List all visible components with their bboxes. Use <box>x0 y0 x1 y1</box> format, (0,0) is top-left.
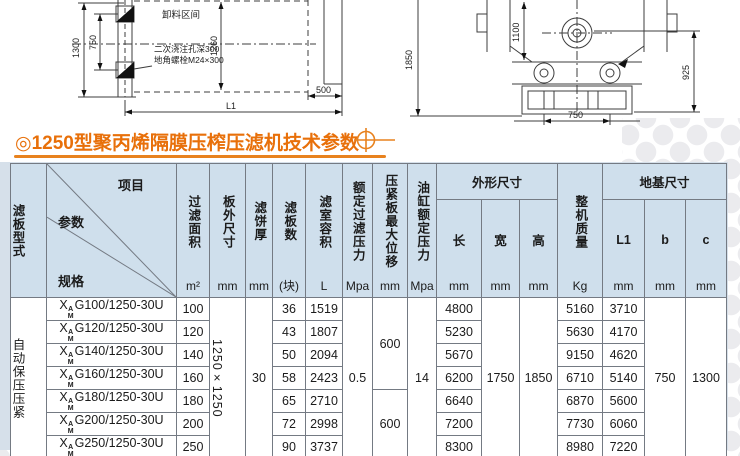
filter-pressure-cell: 0.5 <box>343 298 373 456</box>
plate-outer-unit: mm <box>218 279 238 297</box>
plates-cell: 50 <box>273 344 306 367</box>
model-sub: M <box>68 360 74 367</box>
col-header-filter-area: 过滤面积 m² <box>177 164 210 298</box>
height-unit: mm <box>529 279 549 297</box>
model-sup-sub: AM <box>68 353 74 366</box>
cake-thickness-label: 滤饼厚 <box>253 165 266 279</box>
area-cell: 180 <box>177 390 210 413</box>
length-cell: 4800 <box>437 298 482 321</box>
length-cell: 6640 <box>437 390 482 413</box>
model-cell: XAMG140/1250-30U <box>47 344 177 367</box>
machine-end-view-drawing: 1850 1100 925 750 <box>392 0 722 126</box>
model-cell: XAMG180/1250-30U <box>47 390 177 413</box>
weight-cell: 9150 <box>558 344 603 367</box>
col-header-c: c mm <box>686 200 727 298</box>
volume-cell: 1807 <box>306 321 343 344</box>
displacement-cell-a: 600 <box>373 298 408 390</box>
l1-cell: 3710 <box>603 298 645 321</box>
dim-750-label: 750 <box>568 110 583 120</box>
model-sub: M <box>68 314 74 321</box>
l1-cell: 4170 <box>603 321 645 344</box>
area-cell: 160 <box>177 367 210 390</box>
crosshair-icon <box>352 126 398 154</box>
plates-cell: 72 <box>273 413 306 436</box>
col-header-height: 高 mm <box>520 200 558 298</box>
l1-unit: mm <box>614 279 634 297</box>
col-header-plate-outer: 板外尺寸 mm <box>210 164 246 298</box>
weight-cell: 7730 <box>558 413 603 436</box>
spec-table: 滤板型式 项目 参数 规格 过滤面积 m² 板外尺寸 mm 滤饼厚 mm <box>10 163 727 456</box>
col-header-plate-count: 滤板数 (块) <box>273 164 306 298</box>
model-text: G250/1250-30U <box>75 436 164 450</box>
plates-cell: 58 <box>273 367 306 390</box>
length-cell: 8300 <box>437 436 482 456</box>
width-unit: mm <box>491 279 511 297</box>
model-text: G120/1250-30U <box>75 321 164 335</box>
col-header-cake-thickness: 滤饼厚 mm <box>246 164 273 298</box>
chamber-volume-unit: L <box>321 279 328 297</box>
filter-pressure-label: 额定过滤压力 <box>351 165 364 279</box>
c-unit: mm <box>696 279 716 297</box>
page: 1300 750 1260 卸料区间 二次浇注孔深300 地角螺栓M24×300… <box>0 0 740 456</box>
l1-cell: 5600 <box>603 390 645 413</box>
plates-cell: 90 <box>273 436 306 456</box>
model-x: X <box>59 367 67 381</box>
height-cell: 1850 <box>520 298 558 456</box>
model-x: X <box>59 344 67 358</box>
length-unit: mm <box>449 279 469 297</box>
filter-area-unit: m² <box>186 279 200 297</box>
volume-cell: 2998 <box>306 413 343 436</box>
model-cell: XAMG160/1250-30U <box>47 367 177 390</box>
length-label: 长 <box>453 201 466 279</box>
plate-outer-label: 板外尺寸 <box>221 165 234 279</box>
col-header-cylinder-pressure: 油缸额定压力 Mpa <box>408 164 437 298</box>
model-x: X <box>59 298 67 312</box>
model-sub: M <box>68 406 74 413</box>
title-underline <box>14 155 386 158</box>
weight-cell: 5160 <box>558 298 603 321</box>
cylinder-pressure-unit: Mpa <box>410 279 433 297</box>
model-cell: XAMG100/1250-30U <box>47 298 177 321</box>
weight-cell: 6870 <box>558 390 603 413</box>
col-header-plate-displacement: 压紧板最大位移 mm <box>373 164 408 298</box>
dim-l1-label: L1 <box>226 101 236 111</box>
model-sub: M <box>68 452 74 456</box>
model-text: G180/1250-30U <box>75 390 164 404</box>
model-text: G200/1250-30U <box>75 413 164 427</box>
dim-925-label: 925 <box>681 65 691 80</box>
model-sup-sub: AM <box>68 330 74 343</box>
l1-cell: 6060 <box>603 413 645 436</box>
plate-count-label: 滤板数 <box>283 165 296 279</box>
volume-cell: 2423 <box>306 367 343 390</box>
plate-displacement-label: 压紧板最大位移 <box>384 165 397 279</box>
foundation-label: 地基尺寸 <box>640 176 690 190</box>
filter-area-label: 过滤面积 <box>187 165 200 279</box>
col-header-length: 长 mm <box>437 200 482 298</box>
area-cell: 120 <box>177 321 210 344</box>
dim-1100-label: 1100 <box>511 23 521 42</box>
plate-displacement-unit: mm <box>380 279 400 297</box>
height-label: 高 <box>532 201 545 279</box>
length-cell: 5670 <box>437 344 482 367</box>
col-header-width: 宽 mm <box>482 200 520 298</box>
length-cell: 5230 <box>437 321 482 344</box>
c-label: c <box>703 201 710 279</box>
plate-outer-value: 1250×1250 <box>210 339 224 418</box>
length-cell: 7200 <box>437 413 482 436</box>
col-header-filter-pressure: 额定过滤压力 Mpa <box>343 164 373 298</box>
l1-cell: 4620 <box>603 344 645 367</box>
model-x: X <box>59 413 67 427</box>
page-title: ◎1250型聚丙烯隔膜压榨压滤机技术参数 <box>15 128 359 155</box>
col-header-plate-type: 滤板型式 <box>11 164 47 298</box>
dim-750-label: 750 <box>88 35 98 50</box>
c-cell: 1300 <box>686 298 727 456</box>
area-cell: 140 <box>177 344 210 367</box>
width-label: 宽 <box>494 201 507 279</box>
filter-pressure-unit: Mpa <box>346 279 369 297</box>
weight-cell: 6710 <box>558 367 603 390</box>
plates-cell: 43 <box>273 321 306 344</box>
weight-cell: 8980 <box>558 436 603 456</box>
model-sub: M <box>68 383 74 390</box>
l1-cell: 7220 <box>603 436 645 456</box>
plates-cell: 65 <box>273 390 306 413</box>
note-line2: 地角螺栓M24×300 <box>154 55 224 65</box>
cylinder-pressure-label: 油缸额定压力 <box>416 165 429 279</box>
volume-cell: 2710 <box>306 390 343 413</box>
l1-cell: 5140 <box>603 367 645 390</box>
model-sub: M <box>68 337 74 344</box>
length-cell: 6200 <box>437 367 482 390</box>
col-header-l1: L1 mm <box>603 200 645 298</box>
row-group-label: 自动保压压紧 <box>11 338 24 419</box>
machine-weight-unit: Kg <box>573 279 588 297</box>
b-cell: 750 <box>645 298 686 456</box>
model-sup-sub: AM <box>68 399 74 412</box>
volume-cell: 2094 <box>306 344 343 367</box>
model-x: X <box>59 436 67 450</box>
foundation-plan-drawing: 1300 750 1260 卸料区间 二次浇注孔深300 地角螺栓M24×300… <box>66 0 366 126</box>
model-sup-sub: AM <box>68 445 74 456</box>
model-sup-sub: AM <box>68 376 74 389</box>
spec-row: 自动保压压紧 XAMG100/1250-30U 100 1250×1250 30… <box>11 298 727 321</box>
col-header-machine-weight: 整机质量 Kg <box>558 164 603 298</box>
l1-label: L1 <box>616 201 631 279</box>
dim-1850-label: 1850 <box>404 50 414 70</box>
dim-500-label: 500 <box>316 85 331 95</box>
model-cell: XAMG250/1250-30U <box>47 436 177 456</box>
volume-cell: 1519 <box>306 298 343 321</box>
corner-spec-label: 规格 <box>58 271 84 290</box>
displacement-cell-b: 600 <box>373 390 408 456</box>
chamber-volume-label: 滤室容积 <box>318 165 331 279</box>
model-x: X <box>59 321 67 335</box>
cylinder-pressure-cell: 14 <box>408 298 437 456</box>
machine-weight-label: 整机质量 <box>574 165 587 279</box>
width-cell: 1750 <box>482 298 520 456</box>
b-unit: mm <box>655 279 675 297</box>
cake-thickness-unit: mm <box>249 279 269 297</box>
b-label: b <box>661 201 669 279</box>
area-cell: 100 <box>177 298 210 321</box>
model-sup-sub: AM <box>68 422 74 435</box>
model-sup-sub: AM <box>68 307 74 320</box>
model-text: G160/1250-30U <box>75 367 164 381</box>
model-sub: M <box>68 429 74 436</box>
model-cell: XAMG120/1250-30U <box>47 321 177 344</box>
col-header-b: b mm <box>645 200 686 298</box>
area-cell: 200 <box>177 413 210 436</box>
note-line1: 二次浇注孔深300 <box>154 44 219 54</box>
area-cell: 250 <box>177 436 210 456</box>
plates-cell: 36 <box>273 298 306 321</box>
plate-outer-cell: 1250×1250 <box>210 298 246 456</box>
model-x: X <box>59 390 67 404</box>
cake-thickness-cell: 30 <box>246 298 273 456</box>
corner-header: 项目 参数 规格 <box>47 164 177 298</box>
row-group-cell: 自动保压压紧 <box>11 298 47 456</box>
corner-item-label: 项目 <box>118 175 144 194</box>
model-cell: XAMG200/1250-30U <box>47 413 177 436</box>
volume-cell: 3737 <box>306 436 343 456</box>
model-text: G140/1250-30U <box>75 344 164 358</box>
plate-count-unit: (块) <box>279 279 299 297</box>
col-header-chamber-volume: 滤室容积 L <box>306 164 343 298</box>
overall-dims-label: 外形尺寸 <box>472 176 522 190</box>
weight-cell: 5630 <box>558 321 603 344</box>
group-header-foundation: 地基尺寸 <box>603 164 727 200</box>
model-text: G100/1250-30U <box>75 298 164 312</box>
dim-1300-label: 1300 <box>71 38 81 58</box>
discharge-area-label: 卸料区间 <box>162 9 200 21</box>
corner-param-label: 参数 <box>58 212 84 231</box>
group-header-overall-dims: 外形尺寸 <box>437 164 558 200</box>
plate-type-label: 滤板型式 <box>11 204 24 258</box>
